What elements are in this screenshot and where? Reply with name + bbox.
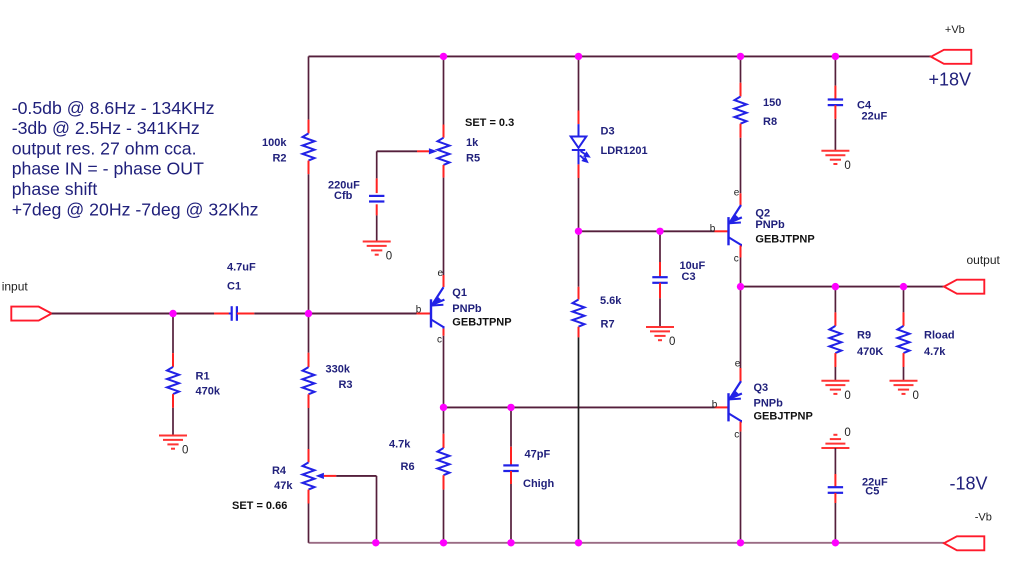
svg-text:LDR1201: LDR1201 [601, 145, 648, 157]
svg-text:5.6k: 5.6k [600, 295, 622, 307]
svg-text:-3db @ 2.5Hz - 341KHz: -3db @ 2.5Hz - 341KHz [12, 118, 200, 138]
svg-text:Chigh: Chigh [523, 478, 554, 490]
svg-text:b: b [416, 305, 422, 316]
svg-text:0: 0 [669, 336, 675, 348]
svg-text:470k: 470k [196, 386, 221, 398]
svg-text:PNPb: PNPb [754, 398, 784, 410]
svg-text:input: input [2, 279, 29, 293]
svg-text:b: b [710, 224, 716, 235]
svg-text:C5: C5 [865, 486, 879, 498]
svg-text:0: 0 [844, 427, 850, 439]
svg-text:4.7k: 4.7k [924, 346, 946, 358]
svg-text:R5: R5 [466, 153, 480, 165]
svg-text:GEBJTPNP: GEBJTPNP [452, 317, 511, 329]
svg-text:Q3: Q3 [754, 382, 769, 394]
svg-text:SET = 0.3: SET = 0.3 [465, 117, 514, 129]
svg-text:output res. 27 ohm cca.: output res. 27 ohm cca. [12, 138, 197, 158]
svg-text:R7: R7 [601, 319, 615, 331]
svg-text:R8: R8 [763, 116, 777, 128]
svg-text:e: e [735, 359, 741, 370]
svg-text:R1: R1 [196, 371, 210, 383]
svg-text:R3: R3 [338, 379, 352, 391]
svg-text:phase IN = - phase OUT: phase IN = - phase OUT [12, 159, 204, 179]
svg-text:D3: D3 [601, 126, 615, 138]
svg-text:4.7uF: 4.7uF [227, 262, 256, 274]
svg-text:c: c [734, 254, 739, 265]
svg-text:0: 0 [182, 445, 188, 457]
svg-text:PNPb: PNPb [452, 303, 482, 315]
svg-text:Q1: Q1 [452, 287, 467, 299]
svg-text:0: 0 [844, 160, 850, 172]
svg-text:1k: 1k [466, 137, 479, 149]
svg-text:0: 0 [913, 390, 919, 402]
svg-text:c: c [734, 430, 739, 441]
svg-text:R6: R6 [401, 461, 415, 473]
svg-text:Rload: Rload [924, 330, 955, 342]
svg-text:e: e [438, 268, 444, 279]
svg-text:0: 0 [386, 251, 392, 263]
svg-text:b: b [712, 400, 718, 411]
svg-text:0: 0 [844, 390, 850, 402]
svg-text:150: 150 [763, 97, 781, 109]
svg-text:C1: C1 [227, 281, 241, 293]
svg-text:Cfb: Cfb [334, 190, 353, 202]
svg-text:-0.5db @ 8.6Hz - 134KHz: -0.5db @ 8.6Hz - 134KHz [12, 98, 215, 118]
svg-text:GEBJTPNP: GEBJTPNP [754, 411, 813, 423]
svg-text:330k: 330k [326, 364, 351, 376]
svg-text:100k: 100k [262, 137, 287, 149]
svg-text:C3: C3 [682, 271, 696, 283]
svg-text:R2: R2 [272, 153, 286, 165]
svg-text:+7deg @ 20Hz -7deg @ 32Khz: +7deg @ 20Hz -7deg @ 32Khz [12, 199, 259, 219]
svg-text:47k: 47k [274, 480, 293, 492]
svg-text:47pF: 47pF [525, 449, 551, 461]
svg-text:+18V: +18V [929, 70, 972, 90]
svg-text:+Vb: +Vb [945, 24, 965, 36]
svg-text:e: e [734, 188, 740, 199]
svg-text:22uF: 22uF [862, 111, 888, 123]
svg-text:GEBJTPNP: GEBJTPNP [755, 234, 814, 246]
svg-text:470K: 470K [857, 346, 883, 358]
svg-text:R4: R4 [272, 465, 287, 477]
svg-text:output: output [967, 253, 1001, 267]
svg-text:-18V: -18V [950, 474, 988, 494]
svg-text:-Vb: -Vb [975, 512, 992, 524]
svg-text:Q2: Q2 [755, 208, 770, 220]
svg-text:4.7k: 4.7k [389, 439, 411, 451]
svg-text:PNPb: PNPb [755, 219, 785, 231]
svg-text:c: c [437, 335, 442, 346]
svg-text:SET = 0.66: SET = 0.66 [232, 500, 287, 512]
svg-text:phase shift: phase shift [12, 179, 98, 199]
svg-text:R9: R9 [857, 330, 871, 342]
